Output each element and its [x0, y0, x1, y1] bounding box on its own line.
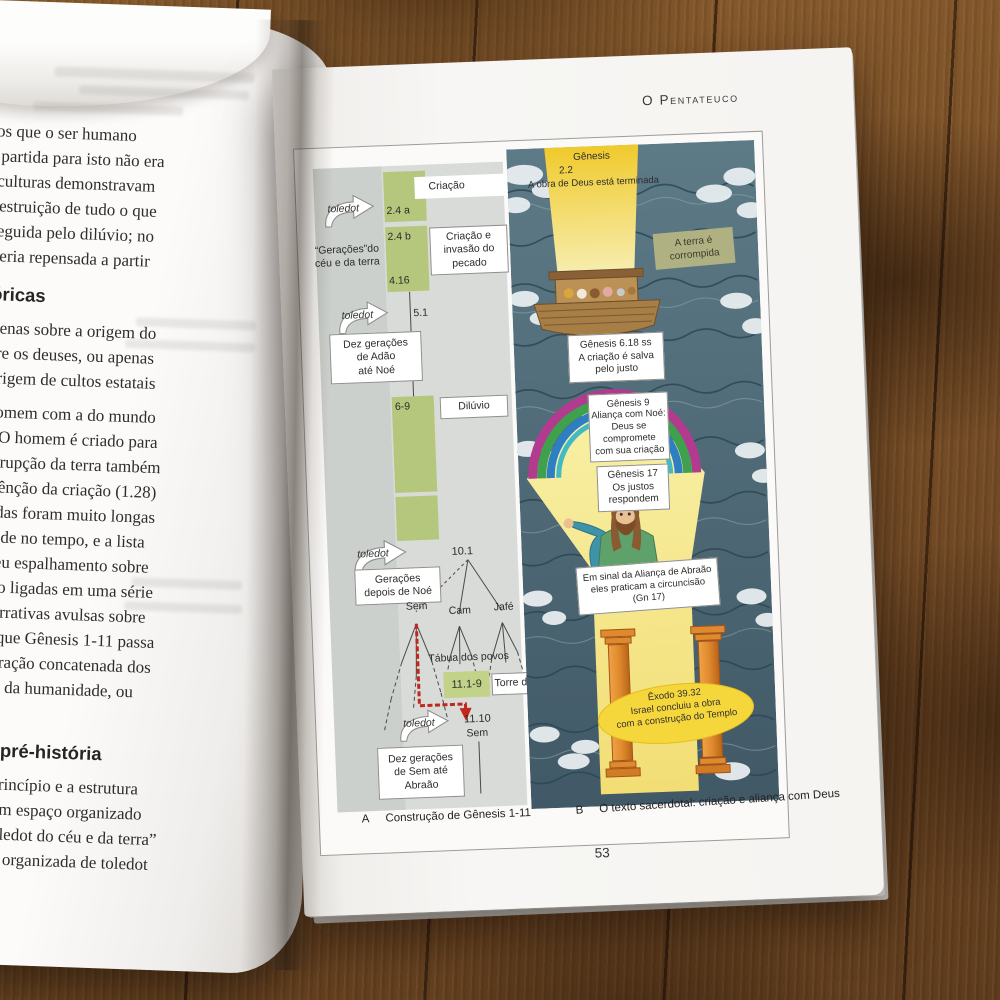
- box-line: pelo justo: [570, 362, 664, 378]
- label-criacao-box: Criação: [414, 173, 515, 199]
- box-line: até Noé: [331, 362, 421, 378]
- label-sem: Sem: [466, 726, 502, 740]
- box-genesis-17: Gênesis 17 Os justos respondem: [596, 464, 670, 513]
- label-sem: Sem: [398, 600, 434, 614]
- show-through-text: [33, 102, 183, 116]
- toledot-arrow-icon: toledot: [396, 706, 467, 743]
- toledot-arrow-icon: toledot: [334, 298, 407, 335]
- verse-ref: 2.4 b: [387, 230, 427, 244]
- photo-scene: s indícios que o ser humano onto de part…: [0, 0, 1000, 1000]
- box-line: pecado: [431, 255, 507, 271]
- figure-box: Criação toledot 2.4 a 2.4 b “Gerações”do…: [293, 131, 790, 857]
- verse-ref: 2.4 a: [386, 204, 426, 218]
- running-header: O Pentateuco: [625, 89, 755, 109]
- box-diluvio: Dilúvio: [440, 395, 509, 420]
- box-terra-corrompida: A terra é corrompida: [653, 227, 736, 270]
- caption-letter: B: [575, 804, 583, 816]
- box-line: com sua criação: [591, 443, 669, 458]
- section-heading: é-históricas: [0, 279, 260, 315]
- timeline-bar-flood-end: [395, 495, 439, 541]
- box-criacao-invasao: Criação e invasão do pecado: [429, 225, 509, 276]
- box-genesis-618: Gênesis 6.18 ss A criação é salva pelo j…: [567, 332, 665, 384]
- verse-ref: 11.1-9: [451, 678, 482, 691]
- box-line: Dilúvio: [441, 399, 507, 415]
- verse-ref: 10.1: [451, 544, 491, 559]
- box-genesis-9: Gênesis 9 Aliança com Noé: Deus se compr…: [588, 391, 671, 462]
- label-cam: Cam: [442, 604, 478, 618]
- verse-ref: 11.10: [464, 712, 508, 727]
- caption-letter: A: [362, 813, 370, 825]
- verse-ref: 2.2: [559, 164, 589, 177]
- box-dez-geracoes-adao: Dez gerações de Adão até Noé: [329, 331, 423, 384]
- verse-ref: 5.1: [413, 306, 443, 320]
- verse-ref: 4.16: [389, 274, 429, 288]
- box-11-1-9: 11.1-9: [443, 671, 490, 699]
- section-heading: ções de pré-história: [0, 735, 244, 771]
- box-line: respondem: [599, 493, 669, 508]
- label-jafe: Jafé: [485, 600, 523, 614]
- box-line: Abraão: [379, 777, 463, 793]
- verse-ref: 6-9: [395, 400, 431, 414]
- box-dez-geracoes-sem: Dez gerações de Sem até Abraão: [377, 745, 465, 800]
- page-number: 53: [572, 844, 633, 861]
- book-spine-shadow: [240, 19, 337, 970]
- right-page: O Pentateuco: [272, 47, 884, 917]
- toledot-label: toledot: [341, 309, 373, 322]
- box-line: depois de Noé: [356, 584, 440, 600]
- toledot-label: toledot: [357, 548, 389, 561]
- label-criacao: Criação: [428, 180, 465, 194]
- left-page-text: s indícios que o ser humano onto de part…: [0, 117, 266, 906]
- toledot-label: toledot: [403, 717, 435, 730]
